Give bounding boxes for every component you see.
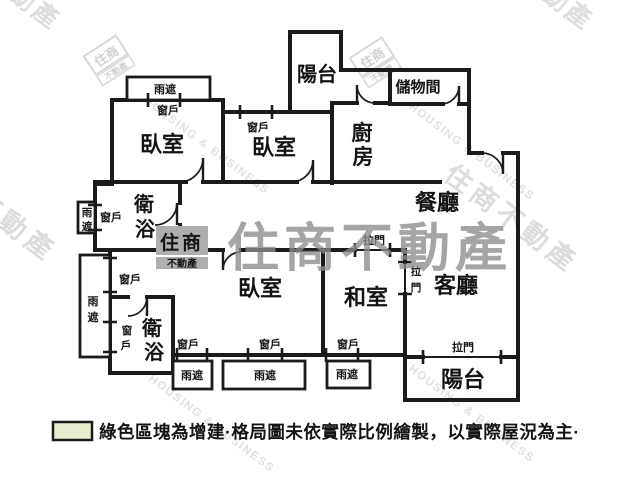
legend: 綠色區塊為增建·格局圖未依實際比例繪製，以實際屋況為主· <box>53 422 580 442</box>
canopy-label-bath1-1: 雨 <box>82 207 93 219</box>
room-label-washitsu: 和室 <box>344 285 388 310</box>
watermark-brand-left: 住商不動產 <box>0 147 63 268</box>
door-arc-bedroom1 <box>179 158 203 182</box>
window-label-bath1: 窗戶 <box>100 210 122 224</box>
door-arc-kitchen <box>357 85 375 103</box>
door-arc-bath1 <box>155 203 177 225</box>
window-label-bedroom3-b: 窗戶 <box>259 337 281 351</box>
room-label-bedroom3: 臥室 <box>238 276 282 301</box>
floorplan-svg: 動產 不動產 住商不動產 住商不動產 HOUSING & BUSINESS HO… <box>0 0 640 480</box>
room-label-bath1-1: 衛 <box>133 192 154 216</box>
brand-logo-faint-2: 住商 不動產 <box>350 37 401 87</box>
canopy-label-bedroom1: 雨遮 <box>154 82 176 96</box>
floorplan-canvas: 動產 不動產 住商不動產 住商不動產 HOUSING & BUSINESS HO… <box>0 0 640 480</box>
room-label-bath1-2: 浴 <box>135 218 156 241</box>
door-arc-bath2 <box>128 297 147 316</box>
window-label-bath2-2: 戶 <box>121 339 132 352</box>
room-label-bath2-2: 浴 <box>144 341 165 364</box>
watermark-corner-tl: 動產 <box>4 0 66 36</box>
sliding-door-label-washitsu-2: 門 <box>411 282 422 294</box>
brand-logo-center: 住商 不動產 <box>156 226 208 270</box>
room-label-bedroom2: 臥室 <box>252 135 296 160</box>
window-label-bath2-1: 窗 <box>122 324 133 337</box>
watermark-brand-center: 住商不動產 <box>227 220 512 278</box>
watermark-corner-tr: 不動產 <box>515 0 600 36</box>
canopy-label-bath1-2: 遮 <box>82 220 93 233</box>
canopy-label-left-1: 雨 <box>88 295 99 308</box>
canopy-label-bedroom3-a: 雨遮 <box>181 368 203 382</box>
canopy-label-left-2: 遮 <box>88 310 99 324</box>
window-label-bedroom1: 窗戶 <box>157 103 179 117</box>
room-label-balcony-top: 陽台 <box>297 62 337 86</box>
door-arc-bedroom2 <box>291 160 313 182</box>
door-arc-storage <box>441 86 459 104</box>
room-label-bedroom1: 臥室 <box>140 132 184 157</box>
room-label-kitchen-2: 房 <box>353 145 374 169</box>
canopy-label-washitsu: 雨遮 <box>336 367 358 381</box>
room-label-kitchen-1: 廚 <box>352 121 373 145</box>
room-label-storage: 儲物間 <box>395 78 440 96</box>
legend-swatch <box>53 422 92 440</box>
canopy-label-bedroom3-b: 雨遮 <box>254 368 276 382</box>
window-label-bedroom3-a: 窗戶 <box>177 337 199 351</box>
brand-logo-center-main: 住商 <box>160 231 204 254</box>
room-label-bath2-1: 衛 <box>141 316 162 340</box>
window-label-bedroom2: 窗戶 <box>247 120 269 134</box>
legend-text: 綠色區塊為增建·格局圖未依實際比例繪製，以實際屋況為主· <box>99 422 580 442</box>
window-label-alcove: 窗戶 <box>119 272 141 286</box>
brand-logo-center-sub: 不動產 <box>167 257 197 270</box>
room-label-dining: 餐廳 <box>415 190 459 215</box>
room-label-balcony-bottom: 陽台 <box>441 367 485 392</box>
sliding-door-label-living: 拉門 <box>452 340 474 354</box>
window-label-washitsu: 窗戶 <box>337 337 359 351</box>
